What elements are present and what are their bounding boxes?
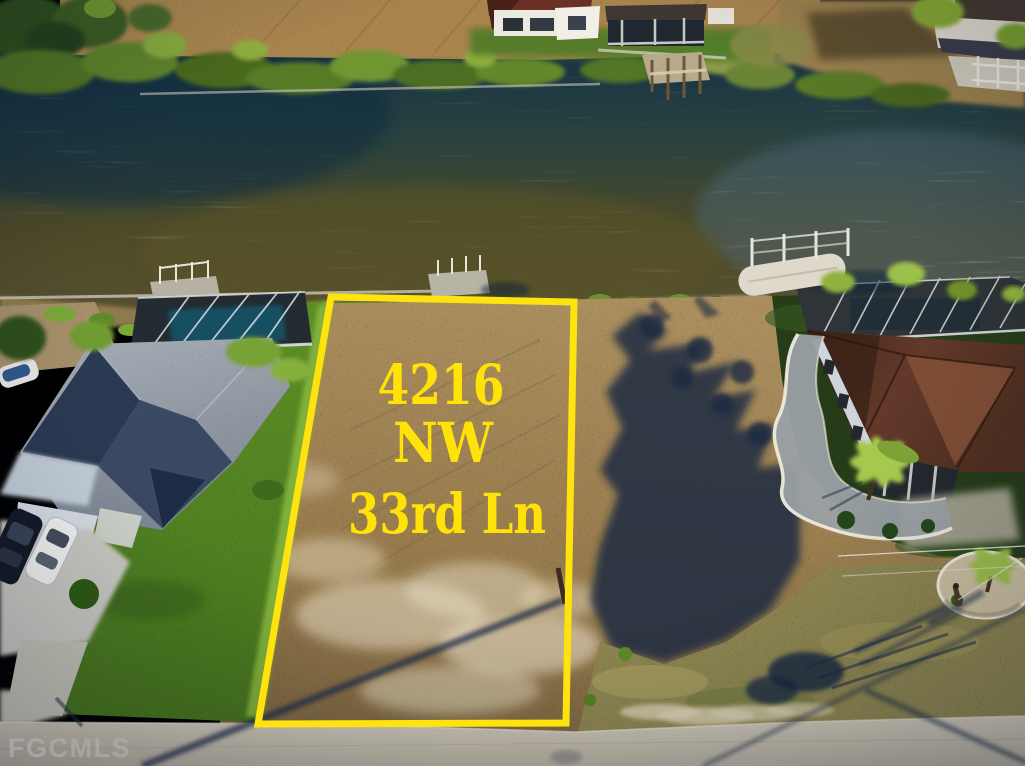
vignette — [0, 0, 1025, 766]
lot-address-street: 33rd Ln — [348, 481, 546, 546]
aerial-photo: 4216 NW 33rd Ln FGCMLS — [0, 0, 1025, 766]
lot-address-number: 4216 — [378, 352, 505, 417]
lot-address-direction: NW — [393, 410, 494, 475]
mls-watermark: FGCMLS — [8, 733, 131, 763]
